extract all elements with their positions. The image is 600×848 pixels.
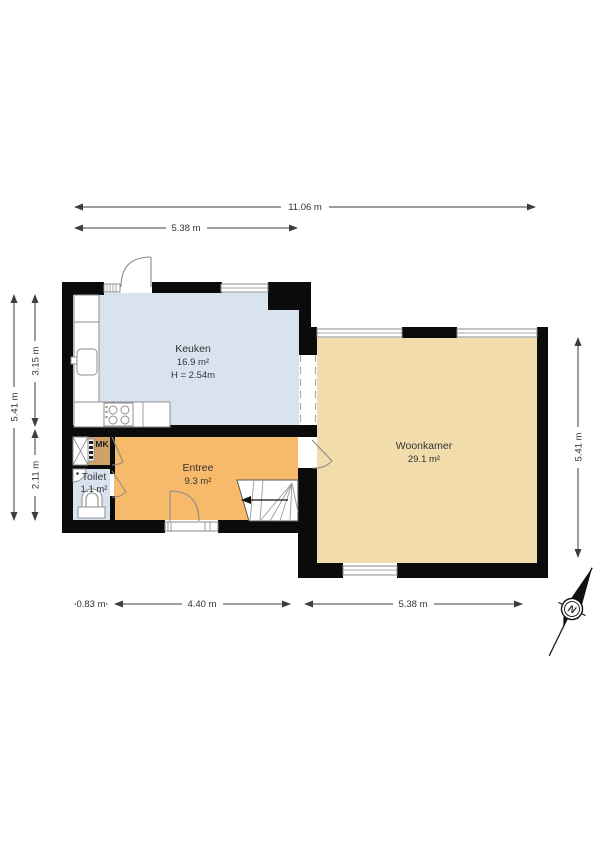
dim-label: 3.15 m: [31, 346, 42, 375]
threshold-frame: [104, 284, 120, 292]
label-keuken-height: H = 2.54m: [171, 370, 215, 381]
dim-label: 2.11 m: [31, 461, 42, 489]
label-entree-area: 9.3 m²: [185, 476, 212, 487]
dim-bottom-left: 0.83 m: [75, 598, 107, 611]
cooktop-icon: [104, 403, 133, 426]
wall-segment: [402, 327, 457, 338]
dim-left-lower: 2.11 m: [29, 430, 42, 520]
label-woonkamer-name: Woonkamer: [396, 440, 453, 452]
meter-tick: [89, 446, 93, 449]
wall-segment: [62, 293, 73, 533]
window-frame: [343, 566, 397, 575]
label-keuken-name: Keuken: [175, 343, 211, 355]
dim-bottom-mid: 4.40 m: [115, 598, 290, 611]
livingroom-window-bottom: [343, 566, 397, 575]
dim-label: 0.83 m: [76, 599, 105, 610]
backdoor-threshold: [104, 284, 120, 292]
basin-tap-dot: [76, 472, 79, 475]
dim-left-total: 5.41 m: [8, 295, 21, 520]
kitchen-window: [221, 284, 268, 292]
meter-tick: [89, 441, 93, 444]
burner: [109, 416, 117, 424]
wall-segment: [73, 465, 115, 469]
dim-label: 5.41 m: [574, 432, 585, 461]
kitchen-cabinet: [74, 295, 99, 322]
dim-right-total: 5.41 m: [572, 338, 585, 557]
meter-tick: [89, 451, 93, 454]
label-keuken-area: 16.9 m²: [177, 357, 209, 368]
cooktop-knob: [106, 406, 108, 408]
burner: [109, 406, 117, 414]
wall-segment: [317, 563, 343, 578]
dim-bottom-right: 5.38 m: [305, 598, 522, 611]
dim-left-upper: 3.15 m: [29, 295, 42, 426]
open-passage-dashed: [301, 355, 316, 425]
dim-label: 5.38 m: [171, 223, 200, 234]
meter-strip: [88, 439, 94, 461]
door-swing-arc: [121, 257, 151, 287]
label-toilet-area: 1.1 m²: [81, 484, 108, 495]
wall-segment: [62, 520, 165, 533]
wall-segment: [300, 327, 317, 355]
dim-top-left: 5.38 m: [75, 221, 297, 234]
livingroom-window-top-left: [317, 329, 402, 337]
label-toilet-name: Toilet: [82, 471, 107, 483]
floorplan-drawing: Keuken 16.9 m² H = 2.54m Entree 9.3 m² T…: [0, 0, 600, 848]
dim-label: 4.40 m: [187, 599, 216, 610]
cooktop-knob: [106, 416, 108, 418]
toilet-tank: [78, 507, 105, 518]
burner: [121, 416, 129, 424]
frontdoor-threshold: [165, 522, 218, 531]
livingroom-window-top-right: [457, 329, 537, 337]
label-woonkamer-area: 29.1 m²: [408, 454, 440, 465]
floorplan-page: Keuken 16.9 m² H = 2.54m Entree 9.3 m² T…: [0, 0, 600, 848]
back-door: [121, 257, 151, 287]
burner: [121, 406, 129, 414]
dim-label: 11.06 m: [288, 202, 322, 213]
label-mk: MK: [95, 439, 109, 449]
dim-label: 5.41 m: [10, 392, 21, 421]
dim-label: 5.38 m: [398, 599, 427, 610]
shaft-box: [73, 437, 88, 465]
label-entree-name: Entree: [183, 462, 214, 474]
wall-segment: [397, 563, 548, 578]
kitchen-sink: [77, 349, 97, 375]
wall-segment: [537, 327, 548, 578]
meter-tick: [89, 456, 93, 459]
wall-segment: [152, 282, 222, 293]
wall-segment: [110, 496, 115, 520]
wall-segment: [298, 468, 317, 578]
dim-top-total: 11.06 m: [75, 200, 535, 213]
cooktop-knob: [106, 411, 108, 413]
sink-tap-icon: [71, 357, 77, 364]
